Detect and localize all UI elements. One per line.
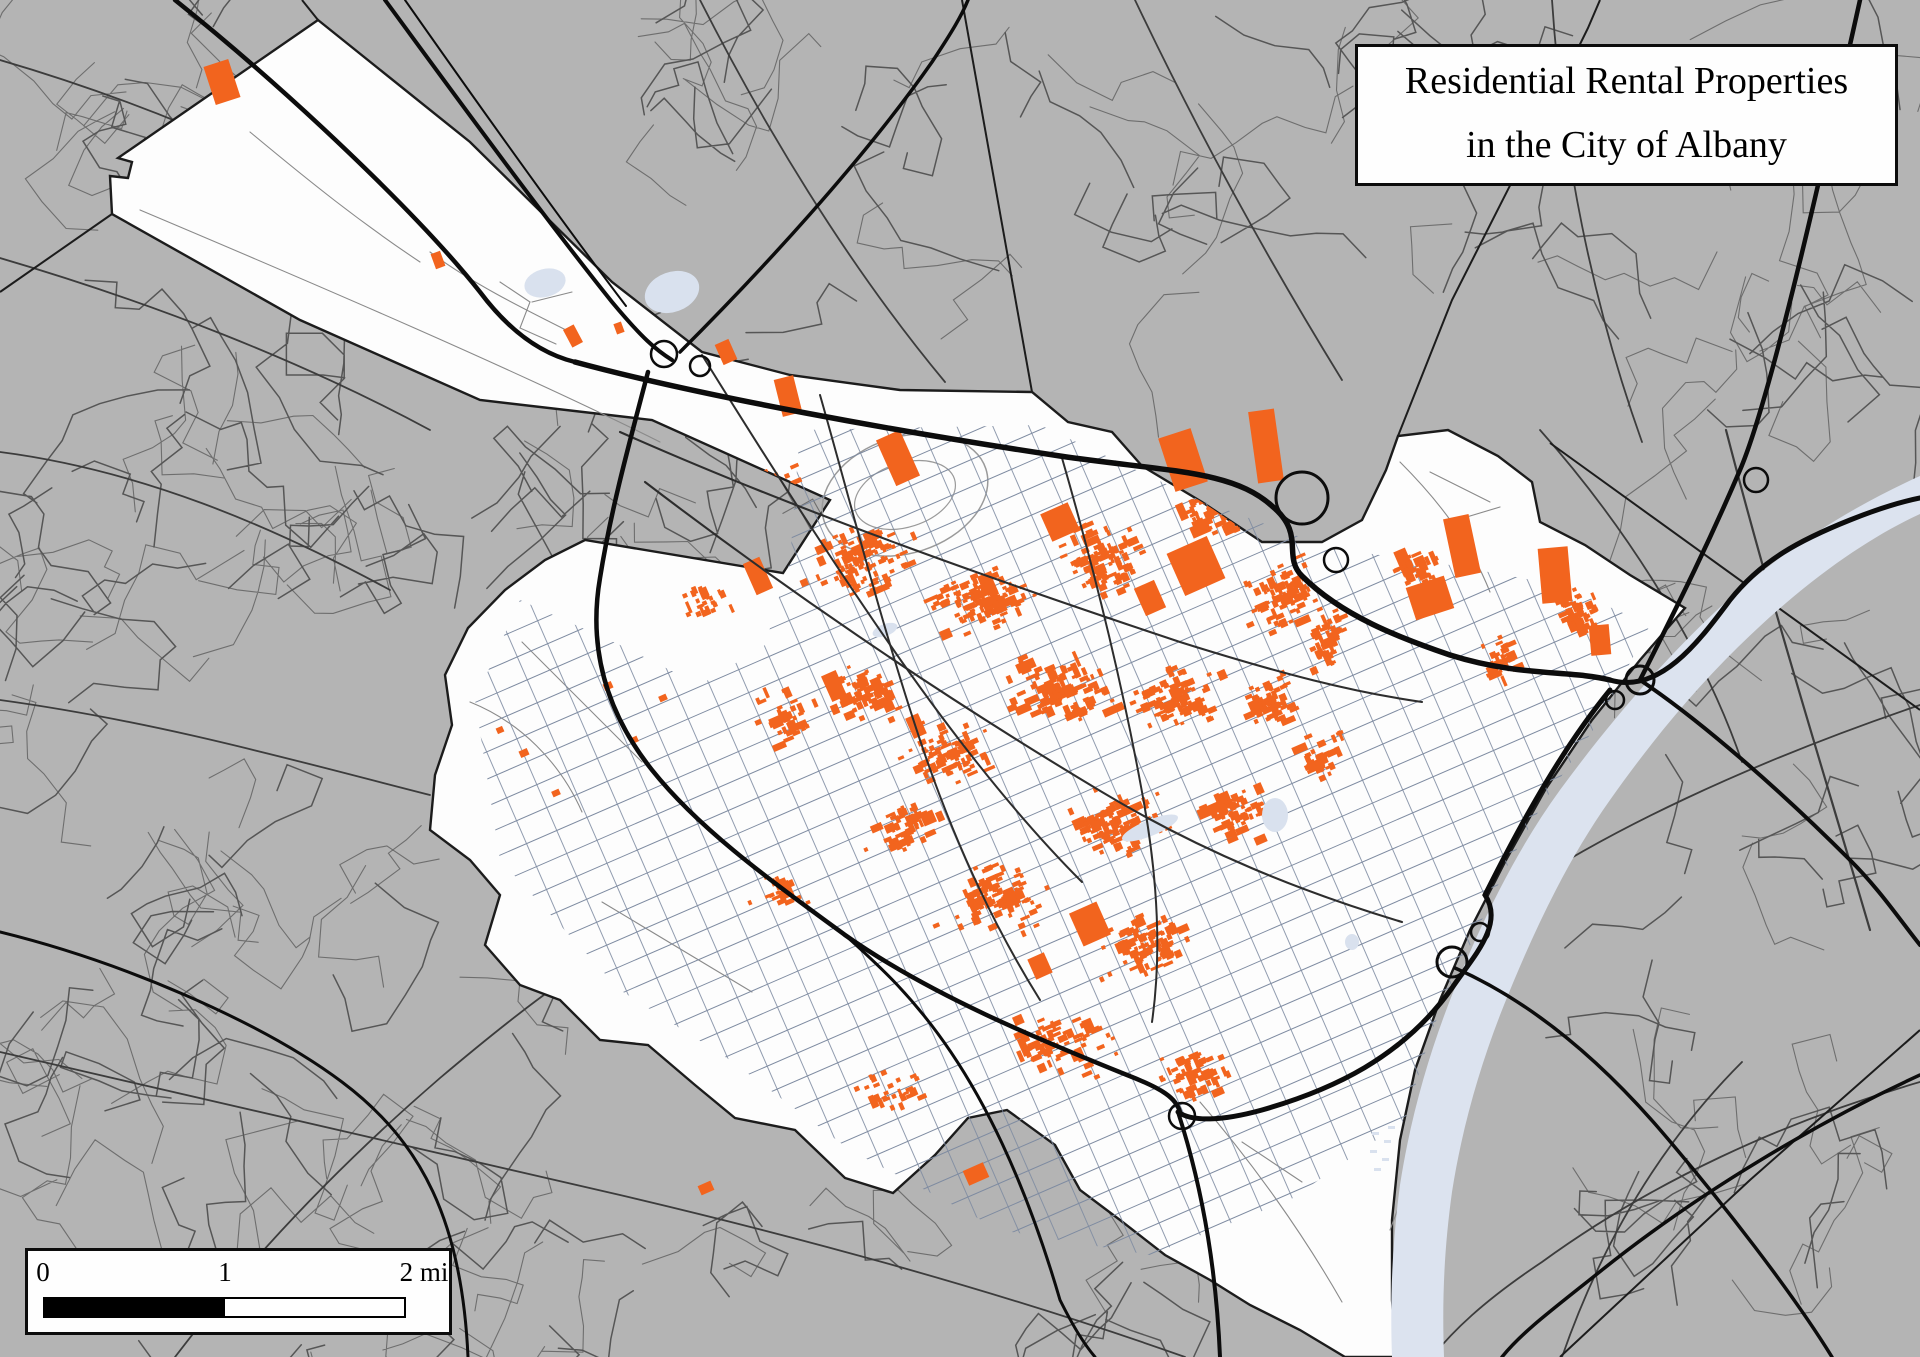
map-title-line-2: in the City of Albany	[1358, 125, 1895, 167]
scale-bar-track	[43, 1297, 406, 1318]
scale-bar-filled-segment	[45, 1299, 225, 1316]
scale-label-2mi: 2 mi	[400, 1257, 449, 1288]
scale-label-0: 0	[36, 1257, 50, 1288]
map-canvas: Residential Rental Properties in the Cit…	[0, 0, 1920, 1357]
scale-label-1: 1	[218, 1257, 232, 1288]
map-title-line-1: Residential Rental Properties	[1358, 61, 1895, 103]
map-title-box: Residential Rental Properties in the Cit…	[1355, 44, 1898, 186]
scale-bar: 0 1 2 mi	[25, 1248, 452, 1335]
albany-map-image	[0, 0, 1920, 1357]
